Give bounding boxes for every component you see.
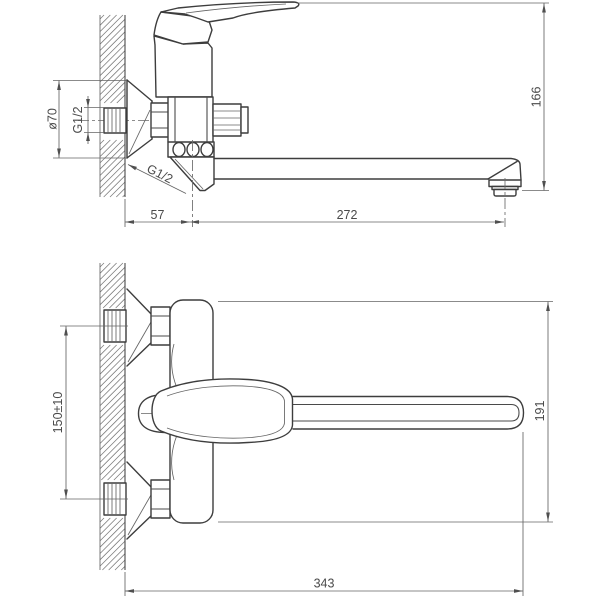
mounting-nut-top (151, 307, 170, 345)
dim-total-reach: 343 (314, 577, 335, 591)
spout-collar (168, 142, 214, 157)
dim-flange-diameter: ø70 (46, 108, 60, 130)
valve-body (168, 97, 213, 142)
mounting-nut-bottom (151, 480, 170, 518)
dim-outlet-thread-leader: G1/2 (145, 162, 176, 187)
dim-body-depth: 191 (533, 401, 547, 422)
mixer-body-upper (154, 36, 212, 97)
plan-view: 150±10 191 343 (51, 263, 553, 596)
side-view: ø70 G1/2 G1/2 57 272 (46, 2, 550, 227)
spout-plan (293, 397, 524, 430)
escutcheon (127, 80, 152, 158)
handle-lever-plan (152, 379, 293, 443)
dim-inlet-thread: G1/2 (71, 106, 85, 133)
dim-overall-height: 166 (530, 87, 544, 108)
escutcheon-bottom (127, 462, 154, 539)
outlet-connector (213, 104, 248, 136)
plan-view-dimensions: 150±10 191 343 (51, 302, 553, 597)
escutcheon-top (127, 289, 154, 366)
mounting-nut (151, 103, 170, 137)
dim-spout-axis-to-outlet: 272 (337, 208, 358, 222)
spout-tube (214, 159, 521, 181)
wall-section-plan (100, 263, 125, 570)
wall-section (100, 15, 125, 197)
dim-wall-to-spout-axis: 57 (151, 208, 165, 222)
faucet-drawing-svg: ø70 G1/2 G1/2 57 272 (0, 0, 600, 600)
spout-joint (170, 157, 214, 191)
technical-drawing-canvas: ø70 G1/2 G1/2 57 272 (0, 0, 600, 600)
dim-inlet-spacing: 150±10 (51, 392, 65, 434)
